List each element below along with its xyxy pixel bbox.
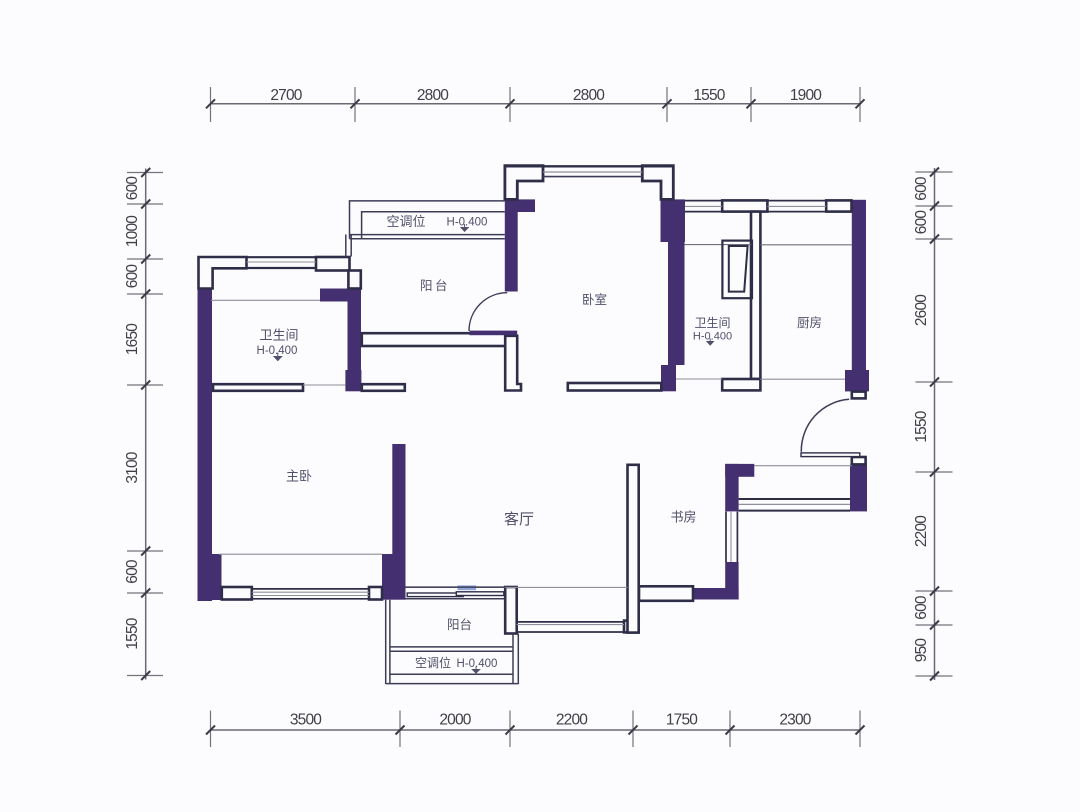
svg-text:卧室: 卧室 [582,292,607,307]
svg-text:600: 600 [124,264,141,289]
svg-text:H-0.400: H-0.400 [257,345,298,357]
svg-text:厨房: 厨房 [797,315,822,330]
svg-text:书房: 书房 [670,510,696,525]
svg-text:主卧: 主卧 [286,469,312,484]
svg-text:2600: 2600 [913,294,930,326]
svg-text:空调位: 空调位 [386,214,425,229]
svg-text:3100: 3100 [124,451,141,483]
svg-text:600: 600 [124,559,141,584]
svg-text:H-0.400: H-0.400 [447,217,488,229]
svg-text:3500: 3500 [290,712,322,729]
svg-text:1650: 1650 [124,323,141,355]
svg-text:2200: 2200 [556,712,588,729]
svg-text:2800: 2800 [573,87,605,104]
svg-text:600: 600 [913,176,930,201]
svg-text:950: 950 [913,638,930,663]
svg-text:客厅: 客厅 [504,511,534,528]
svg-text:2800: 2800 [417,87,449,104]
svg-text:H-0.400: H-0.400 [457,658,498,670]
svg-text:卫生间: 卫生间 [259,328,298,343]
svg-text:2300: 2300 [779,712,811,729]
svg-text:卫生间: 卫生间 [694,316,730,330]
svg-text:1550: 1550 [693,87,725,104]
svg-text:600: 600 [913,210,930,235]
svg-text:1750: 1750 [666,712,698,729]
svg-text:2000: 2000 [439,712,471,729]
svg-text:1550: 1550 [913,410,930,442]
svg-text:1900: 1900 [790,87,822,104]
svg-text:600: 600 [913,595,930,620]
svg-text:1000: 1000 [124,215,141,247]
svg-text:阳台: 阳台 [420,278,450,293]
svg-text:2200: 2200 [913,515,930,547]
svg-text:2700: 2700 [270,87,302,104]
svg-text:空调位: 空调位 [415,655,451,670]
svg-text:600: 600 [124,176,141,201]
svg-text:阳台: 阳台 [447,617,472,632]
svg-text:1550: 1550 [124,617,141,649]
svg-text:H-0.400: H-0.400 [693,331,732,343]
